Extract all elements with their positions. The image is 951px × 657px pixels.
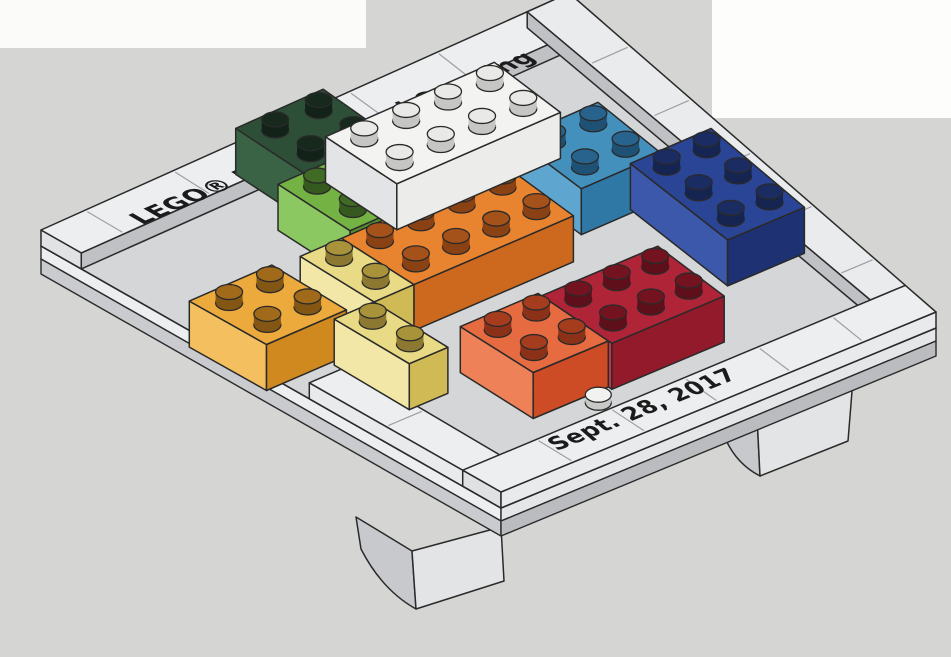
front-left-leg <box>356 517 504 609</box>
lego-set-illustration: LEGO® House Grand Opening Sept. 28, 2017 <box>0 0 951 657</box>
white-scan-band-top-left <box>0 0 366 48</box>
keystone-round-plate-1x1 <box>585 387 611 410</box>
isometric-lego-table-scene: LEGO® House Grand Opening Sept. 28, 2017 <box>0 0 951 657</box>
front-left-leg-front-face <box>412 527 504 609</box>
white-scan-patch-top-right <box>712 0 951 118</box>
